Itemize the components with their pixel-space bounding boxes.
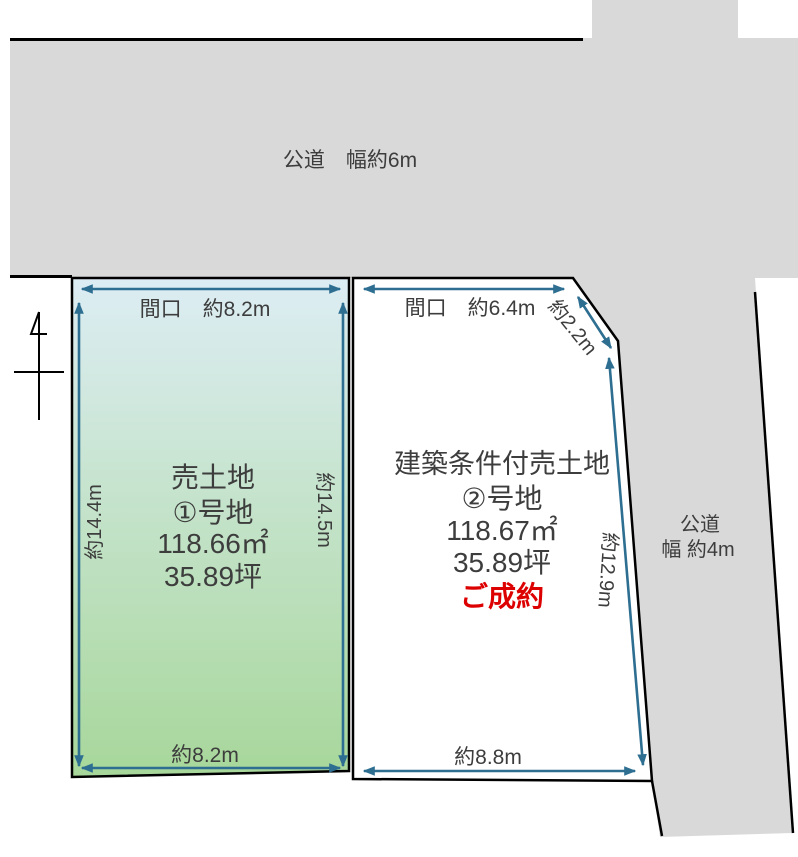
lot2-bottom-dimension-label: 約8.8m bbox=[454, 746, 522, 769]
lot2-frontage-label: 間口 約6.4m bbox=[405, 297, 536, 320]
lot2-number: ②号地 bbox=[461, 483, 542, 514]
lot1-title: 売土地 bbox=[171, 462, 255, 493]
land-plot-diagram: 公道 幅約6m 公道 幅 約4m 間口 約8.2m 約14.4m 約14.5m … bbox=[0, 0, 798, 857]
road-top-strip-shape bbox=[592, 0, 738, 40]
road-right-label-line1: 公道 bbox=[680, 513, 720, 536]
lot1-left-dimension-label: 約14.4m bbox=[83, 484, 106, 560]
north-arrow-icon bbox=[14, 312, 64, 420]
lot1-number: ①号地 bbox=[172, 497, 253, 528]
lot2-area-m2: 118.67㎡ bbox=[446, 515, 558, 546]
lot2-area-tsubo: 35.89坪 bbox=[453, 547, 551, 578]
lot1-frontage-label: 間口 約8.2m bbox=[140, 298, 271, 321]
plot-diagram-canvas: 公道 幅約6m 公道 幅 約4m 間口 約8.2m 約14.4m 約14.5m … bbox=[0, 0, 798, 857]
road-top-label: 公道 幅約6m bbox=[283, 149, 417, 172]
lot1-area-m2: 118.66㎡ bbox=[157, 528, 269, 559]
lot2-title: 建築条件付売土地 bbox=[394, 449, 610, 479]
lot1-right-dimension-label: 約14.5m bbox=[313, 472, 336, 548]
lot2-sold-status-badge: ご成約 bbox=[460, 580, 544, 612]
lot1-bottom-dimension-label: 約8.2m bbox=[171, 744, 239, 767]
road-right-label-line2: 幅 約4m bbox=[661, 538, 734, 561]
lot1-area-tsubo: 35.89坪 bbox=[164, 561, 262, 592]
